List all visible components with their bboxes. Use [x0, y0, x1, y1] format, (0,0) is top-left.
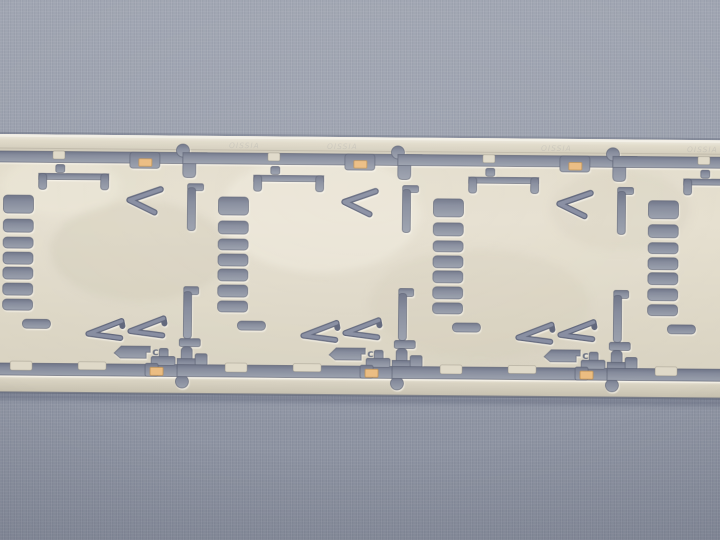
photo-vignette: [0, 0, 720, 540]
etched-leadframe-photo: c: [0, 0, 720, 540]
